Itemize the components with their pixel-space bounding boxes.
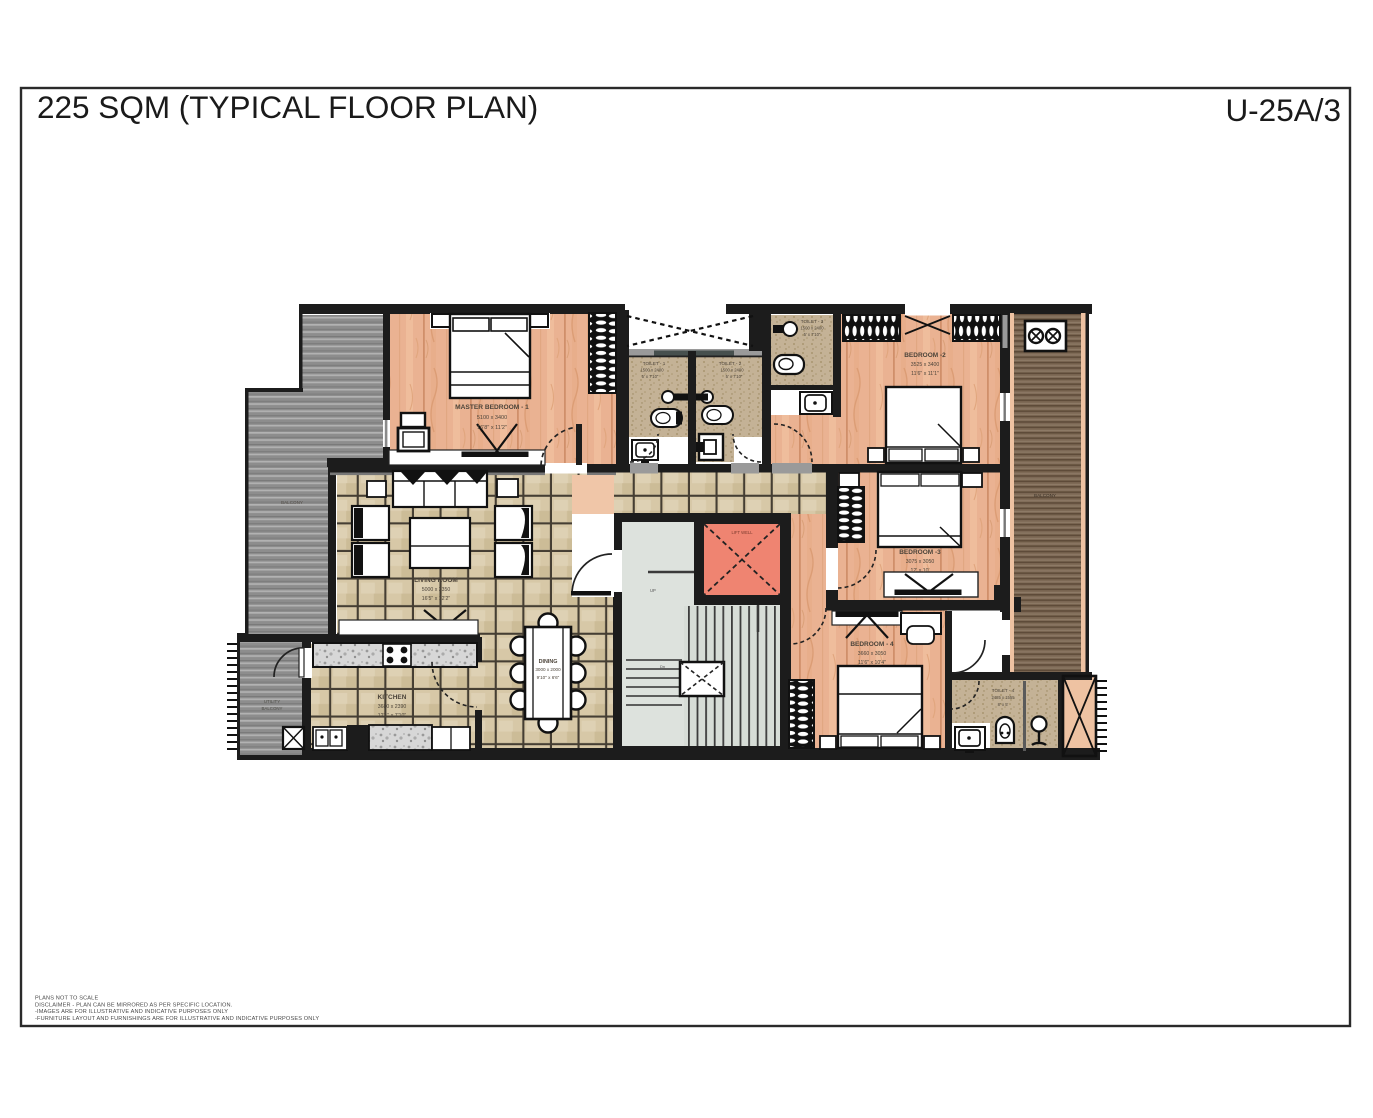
svg-text:DISCLAIMER - PLAN CAN BE MIRRO: DISCLAIMER - PLAN CAN BE MIRRORED AS PER… [35,1002,233,1008]
svg-text:3525 x 3400: 3525 x 3400 [911,362,940,368]
svg-text:3075 x 3050: 3075 x 3050 [906,559,935,565]
svg-text:TOILET - 3: TOILET - 3 [801,319,824,324]
svg-text:UTILITY: UTILITY [264,699,280,704]
svg-text:DINING: DINING [539,659,558,665]
svg-text:12'1" x 7'10": 12'1" x 7'10" [378,713,407,719]
svg-text:5' x 7'10": 5' x 7'10" [642,374,659,379]
svg-text:Dn: Dn [660,664,665,669]
svg-text:BEDROOM - 4: BEDROOM - 4 [850,641,894,648]
svg-text:UP: UP [650,588,656,593]
svg-text:11'6" x 11'1": 11'6" x 11'1" [911,371,939,377]
svg-text:5' x 7'10": 5' x 7'10" [804,332,821,337]
svg-text:U-25A/3: U-25A/3 [1225,92,1341,128]
svg-text:3680 x 2390: 3680 x 2390 [378,704,407,710]
svg-text:1500 x 2400: 1500 x 2400 [800,326,824,331]
svg-text:TOILET - 2: TOILET - 2 [719,361,742,366]
svg-text:1500 x 2400: 1500 x 2400 [640,368,664,373]
svg-text:MASTER BEDROOM - 1: MASTER BEDROOM - 1 [455,404,529,411]
svg-text:16'8" x 11'2": 16'8" x 11'2" [477,425,507,431]
svg-text:3000 x 2000: 3000 x 2000 [535,667,561,672]
svg-text:BALCONY: BALCONY [1034,493,1056,498]
svg-text:-FURNITURE LAYOUT AND FURNISHI: -FURNITURE LAYOUT AND FURNISHINGS ARE FO… [35,1016,319,1022]
svg-text:3660 x 3050: 3660 x 3050 [858,651,887,657]
svg-text:9'10" x 6'6": 9'10" x 6'6" [537,675,560,680]
svg-text:BALCONY: BALCONY [281,500,303,505]
svg-text:5' x 7'10": 5' x 7'10" [726,374,743,379]
svg-text:16'5" x 12'2": 16'5" x 12'2" [422,596,451,602]
svg-text:2485 x 1555: 2485 x 1555 [991,695,1015,700]
svg-text:LIVING ROOM: LIVING ROOM [414,577,458,584]
svg-text:LIFT WELL: LIFT WELL [731,530,753,535]
svg-text:5100 x 3400: 5100 x 3400 [477,415,507,421]
svg-text:5000 x 3350: 5000 x 3350 [422,587,451,593]
svg-text:225 SQM (TYPICAL FLOOR PLAN): 225 SQM (TYPICAL FLOOR PLAN) [37,89,538,125]
svg-text:TOILET - 4: TOILET - 4 [992,688,1015,693]
svg-text:PLANS NOT TO SCALE: PLANS NOT TO SCALE [35,996,98,1002]
svg-text:1500 x 2400: 1500 x 2400 [720,368,744,373]
svg-text:8' x 5': 8' x 5' [998,702,1009,707]
svg-text:BEDROOM -2: BEDROOM -2 [904,352,946,359]
svg-text:TOILET - 1: TOILET - 1 [643,361,666,366]
svg-text:KITCHEN: KITCHEN [378,694,407,701]
svg-text:BEDROOM -3: BEDROOM -3 [899,549,941,556]
svg-text:-IMAGES ARE FOR ILLUSTRATIVE: -IMAGES ARE FOR ILLUSTRATIVE AND INDICAT… [35,1009,228,1015]
svg-text:BALCONY: BALCONY [262,706,283,711]
svg-text:11'6" x 10'4": 11'6" x 10'4" [858,660,886,666]
svg-text:12' x 10': 12' x 10' [911,568,930,574]
